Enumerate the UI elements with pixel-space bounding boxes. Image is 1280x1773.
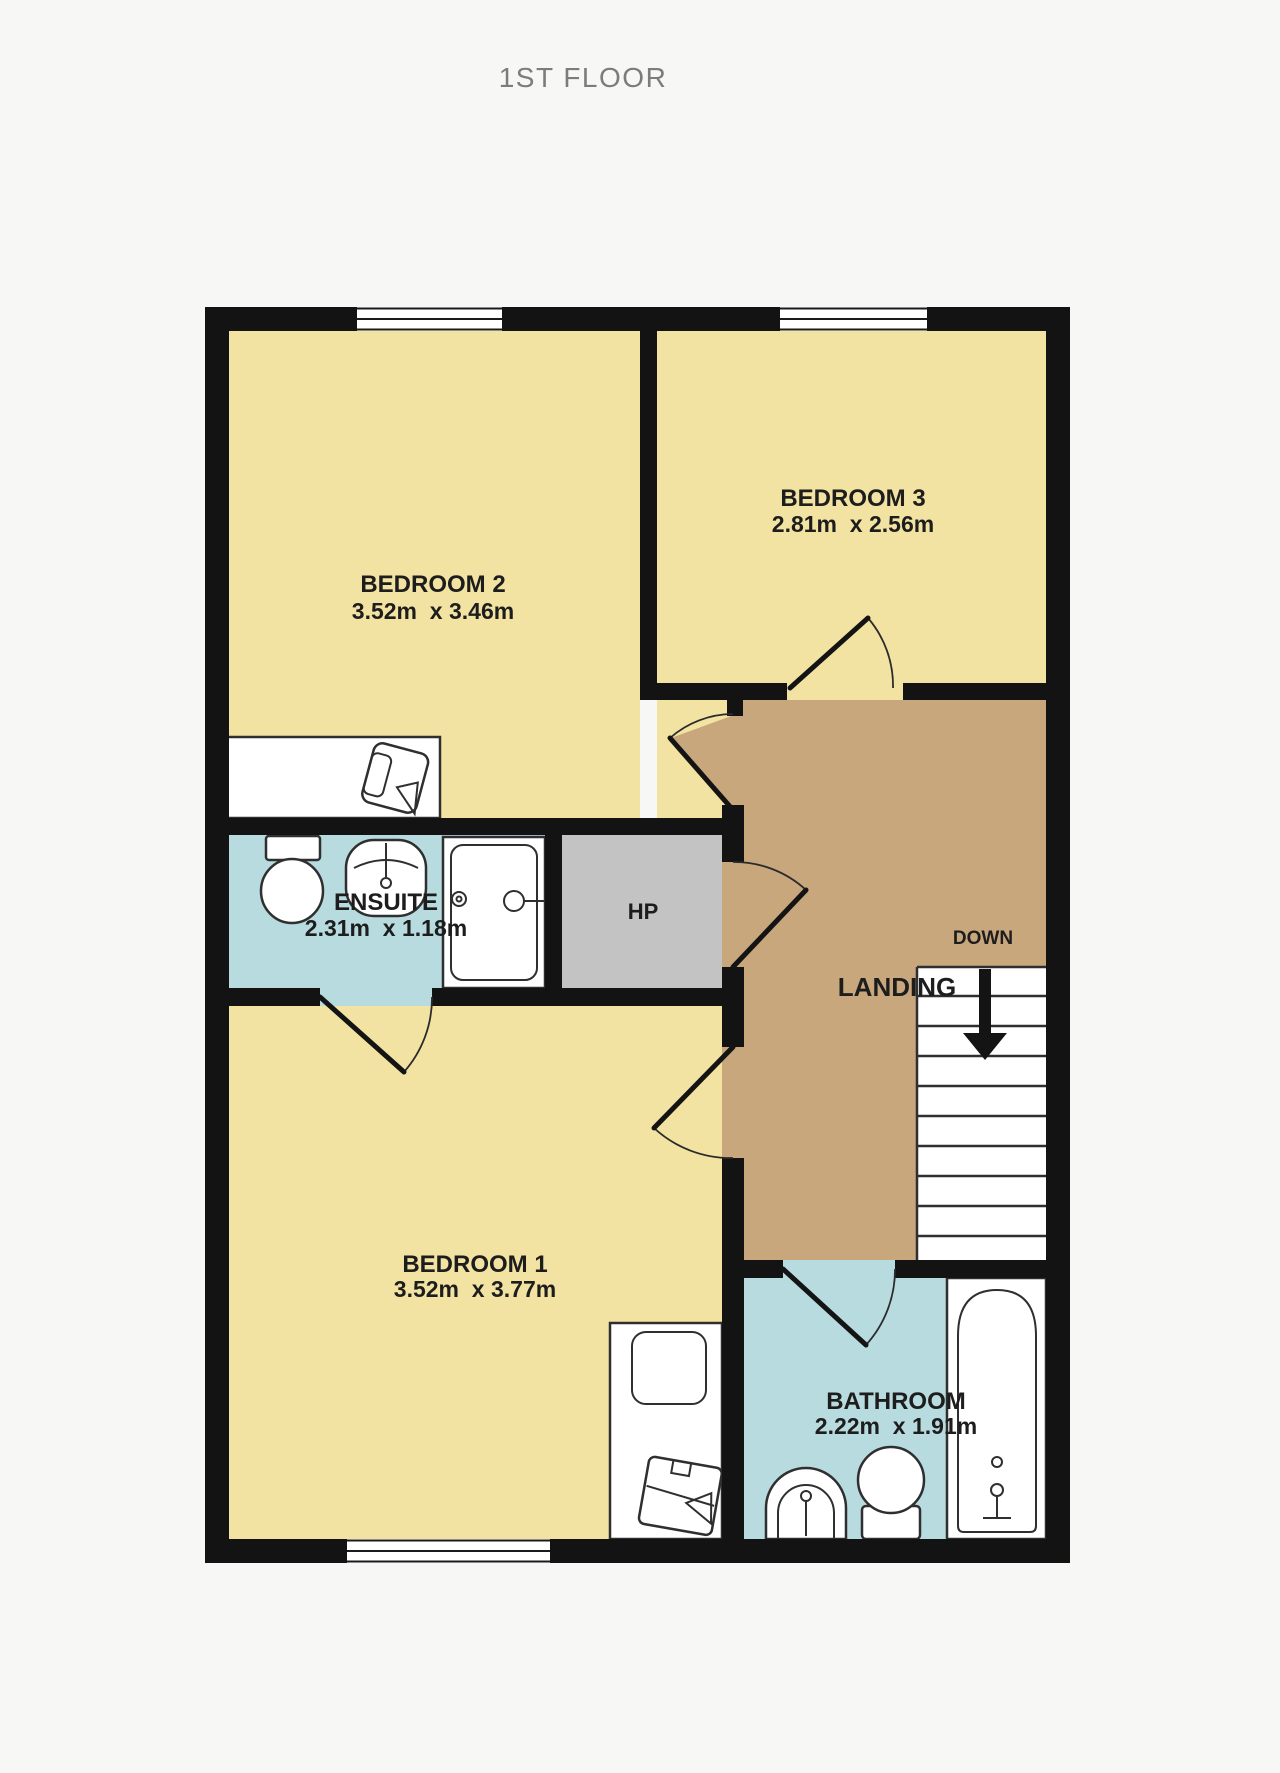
- bedroom3-dims: 2.81m x 2.56m: [772, 511, 934, 537]
- bedroom3-label: BEDROOM 3: [780, 485, 925, 512]
- bedroom1-dims: 3.52m x 3.77m: [394, 1276, 556, 1302]
- pedestal-sink-icon: [766, 1468, 846, 1539]
- ensuite-label: ENSUITE: [334, 889, 438, 916]
- floor-plan-svg: 1ST FLOOR: [0, 0, 1280, 1773]
- bedroom2-dims: 3.52m x 3.46m: [352, 598, 514, 624]
- window-icon: [780, 307, 927, 331]
- page-title: 1ST FLOOR: [499, 62, 668, 93]
- landing-label: LANDING: [838, 972, 956, 1002]
- window-icon: [347, 1539, 550, 1563]
- window-icon: [357, 307, 502, 331]
- bed-icon: [610, 1323, 723, 1539]
- bathroom-dims: 2.22m x 1.91m: [815, 1413, 977, 1439]
- shower-icon: [443, 837, 545, 988]
- bathroom-label: BATHROOM: [826, 1388, 966, 1415]
- toilet-icon: [261, 836, 323, 923]
- bedroom2-label: BEDROOM 2: [360, 571, 505, 598]
- toilet-icon-bathroom: [858, 1447, 924, 1539]
- floorplan-page: 1ST FLOOR: [0, 0, 1280, 1773]
- blanket-icon: [638, 1456, 723, 1536]
- bedroom1-label: BEDROOM 1: [402, 1251, 547, 1278]
- stairs-down-label: DOWN: [953, 928, 1013, 949]
- ensuite-dims: 2.31m x 1.18m: [305, 915, 467, 941]
- hp-label: HP: [628, 899, 659, 924]
